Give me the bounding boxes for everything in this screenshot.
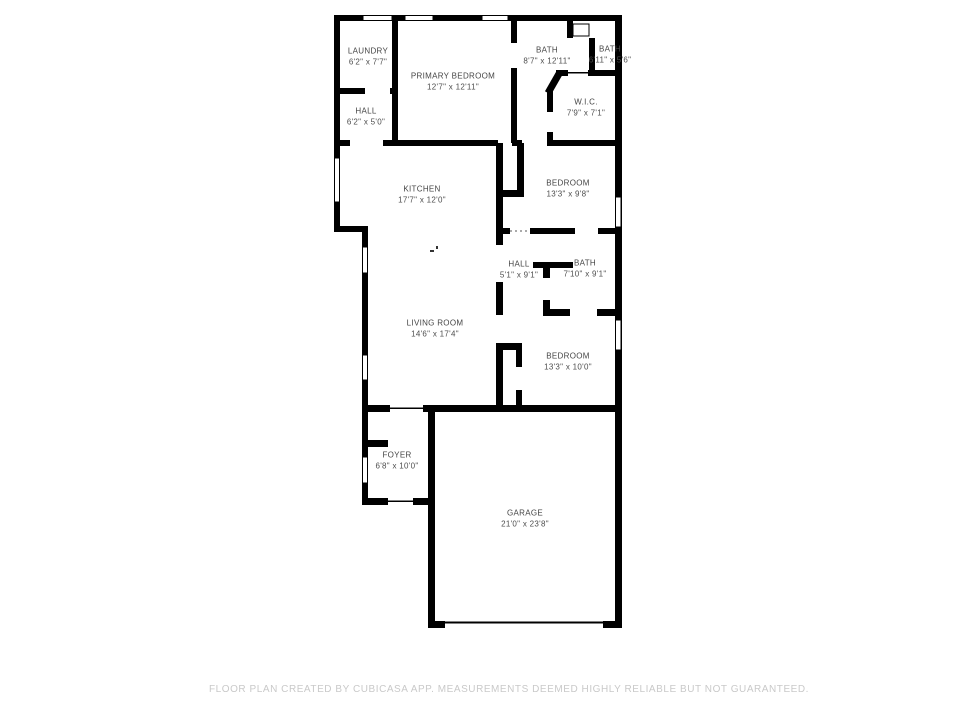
- wall-segment: [428, 405, 435, 628]
- wall-segment: [428, 621, 445, 628]
- wall-segment: [334, 88, 365, 94]
- room-dims: 6'2" x 5'0": [347, 117, 385, 128]
- entry-door-line: [388, 501, 413, 503]
- wall-segment: [413, 498, 430, 505]
- door-line: [568, 72, 588, 74]
- room-dims: 13'3" x 9'8": [546, 189, 589, 200]
- room-label-laundry: LAUNDRY 6'2" x 7'7": [348, 47, 388, 68]
- window: [482, 16, 508, 21]
- room-dims: 6'11" x 5'6": [589, 55, 631, 66]
- wall-segment: [516, 350, 522, 367]
- room-dims: 6'8" x 10'0": [375, 461, 418, 472]
- wall-segment: [517, 143, 524, 197]
- wall-segment: [500, 190, 524, 197]
- room-label-kitchen: KITCHEN 17'7" x 12'0": [398, 185, 446, 206]
- wall-segment: [496, 282, 503, 315]
- room-name: FOYER: [375, 451, 418, 462]
- wall-segment: [503, 228, 510, 234]
- wall-segment: [496, 343, 522, 350]
- wall-segment: [547, 132, 553, 143]
- wall-segment: [543, 262, 550, 278]
- room-dims: 7'9" x 7'1": [567, 108, 605, 119]
- footer-disclaimer: FLOOR PLAN CREATED BY CUBICASA APP. MEAS…: [209, 684, 809, 695]
- room-label-primary-bedroom: PRIMARY BEDROOM 12'7" x 12'11": [411, 72, 495, 93]
- wall-segment: [530, 228, 575, 234]
- window: [335, 158, 340, 202]
- room-label-wic: W.I.C. 7'9" x 7'1": [567, 98, 605, 119]
- room-dims: 14'6" x 17'4": [407, 329, 464, 340]
- wall-segment: [362, 405, 390, 412]
- window: [363, 16, 392, 21]
- kitchen-fixture-tick: [430, 250, 434, 252]
- wall-segment: [392, 15, 398, 143]
- wall-segment: [547, 140, 622, 146]
- window: [363, 355, 368, 380]
- opening-line: [390, 408, 423, 410]
- room-label-living-room: LIVING ROOM 14'6" x 17'4": [407, 319, 464, 340]
- window: [363, 247, 368, 273]
- room-dims: 8'7" x 12'11": [523, 56, 570, 67]
- wall-segment: [511, 68, 517, 143]
- wall-segment: [362, 440, 388, 447]
- window: [616, 320, 622, 350]
- room-name: BATH: [589, 45, 631, 56]
- wall-segment: [588, 70, 622, 76]
- room-name: BATH: [563, 259, 606, 270]
- room-name: HALL: [347, 107, 385, 118]
- wall-segment: [547, 88, 553, 112]
- window: [363, 457, 368, 483]
- garage-door-line: [445, 622, 603, 624]
- room-label-bedroom-1: BEDROOM 13'3" x 9'8": [546, 179, 589, 200]
- wall-segment: [511, 20, 517, 43]
- wall-segment: [496, 343, 503, 412]
- room-label-hall-lower: HALL 5'1" x 9'1": [500, 260, 538, 281]
- room-dims: 21'0" x 23'8": [501, 519, 549, 530]
- room-label-bedroom-2: BEDROOM 13'3" x 10'0": [544, 352, 592, 373]
- wall-segment: [390, 88, 398, 94]
- kitchen-fixture-tick: [436, 246, 438, 249]
- window: [616, 197, 622, 227]
- room-name: W.I.C.: [567, 98, 605, 109]
- room-name: LAUNDRY: [348, 47, 388, 58]
- door-leaf: [573, 24, 589, 36]
- wall-segment: [598, 228, 615, 234]
- room-dims: 17'7" x 12'0": [398, 195, 446, 206]
- wall-segment: [383, 140, 498, 146]
- room-label-bath-small: BATH 6'11" x 5'6": [589, 45, 631, 66]
- room-label-hall-upper: HALL 6'2" x 5'0": [347, 107, 385, 128]
- room-label-garage: GARAGE 21'0" x 23'8": [501, 509, 549, 530]
- room-name: BEDROOM: [544, 352, 592, 363]
- wall-segment: [362, 498, 388, 505]
- wall-segment: [567, 20, 573, 38]
- room-name: HALL: [500, 260, 538, 271]
- room-dims: 6'2" x 7'7": [348, 57, 388, 68]
- room-name: BATH: [523, 46, 570, 57]
- room-name: LIVING ROOM: [407, 319, 464, 330]
- room-label-bath-main: BATH 8'7" x 12'11": [523, 46, 570, 67]
- floor-plan-drawing: [0, 0, 960, 720]
- room-dims: 5'1" x 9'1": [500, 270, 538, 281]
- room-name: PRIMARY BEDROOM: [411, 72, 495, 83]
- window: [405, 16, 433, 21]
- room-dims: 13'3" x 10'0": [544, 362, 592, 373]
- wall-segment: [334, 140, 350, 146]
- floor-plan-page: LAUNDRY 6'2" x 7'7" HALL 6'2" x 5'0" PRI…: [0, 0, 960, 720]
- room-dims: 12'7" x 12'11": [411, 82, 495, 93]
- room-name: BEDROOM: [546, 179, 589, 190]
- room-name: GARAGE: [501, 509, 549, 520]
- wall-segment: [597, 309, 615, 316]
- wall-segment: [543, 309, 570, 316]
- room-label-foyer: FOYER 6'8" x 10'0": [375, 451, 418, 472]
- room-name: KITCHEN: [398, 185, 446, 196]
- room-dims: 7'10" x 9'1": [563, 269, 606, 280]
- wall-segment: [423, 405, 621, 412]
- room-label-bath-2: BATH 7'10" x 9'1": [563, 259, 606, 280]
